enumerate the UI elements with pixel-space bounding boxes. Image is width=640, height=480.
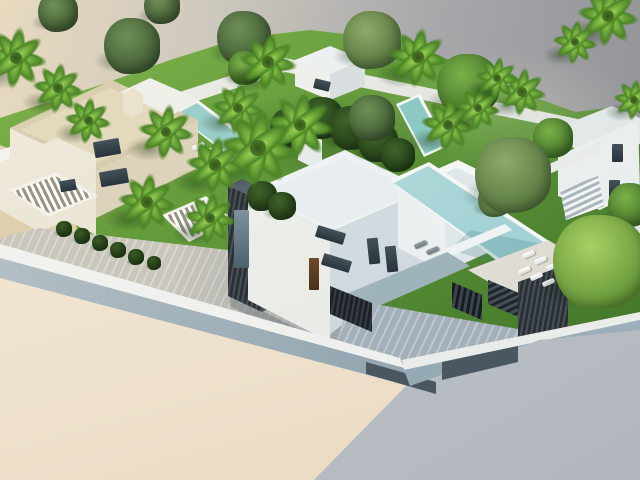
hedge-tree	[128, 249, 144, 265]
palm-tree	[474, 55, 520, 101]
hedge-tree	[56, 221, 72, 237]
palm-tree	[551, 18, 599, 66]
hedge-tree	[92, 235, 108, 251]
pine-tree	[475, 137, 551, 213]
hedge-tree	[74, 228, 90, 244]
bright-tree	[553, 215, 640, 309]
hedge-tree	[147, 256, 161, 270]
hedge-tree	[110, 242, 126, 258]
palm-tree	[386, 25, 450, 89]
olive-tree	[104, 18, 160, 74]
trees-layer	[0, 0, 640, 480]
hedge-tree	[268, 192, 296, 220]
palm-tree	[612, 78, 640, 122]
palm-tree	[63, 95, 113, 145]
palm-tree	[182, 190, 238, 246]
architectural-render	[0, 0, 640, 480]
palm-tree	[184, 134, 246, 196]
olive-tree	[349, 95, 395, 141]
